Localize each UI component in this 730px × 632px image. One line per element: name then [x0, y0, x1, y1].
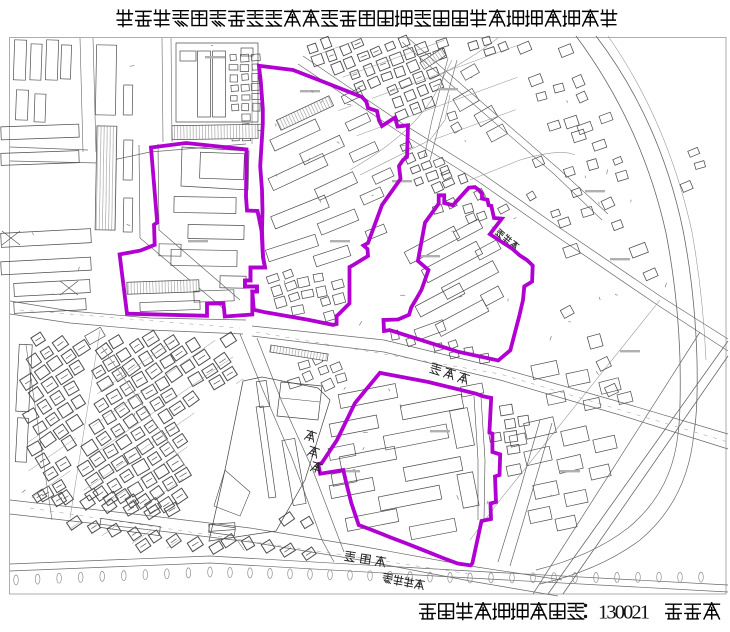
svg-text:130021: 130021	[598, 602, 650, 624]
